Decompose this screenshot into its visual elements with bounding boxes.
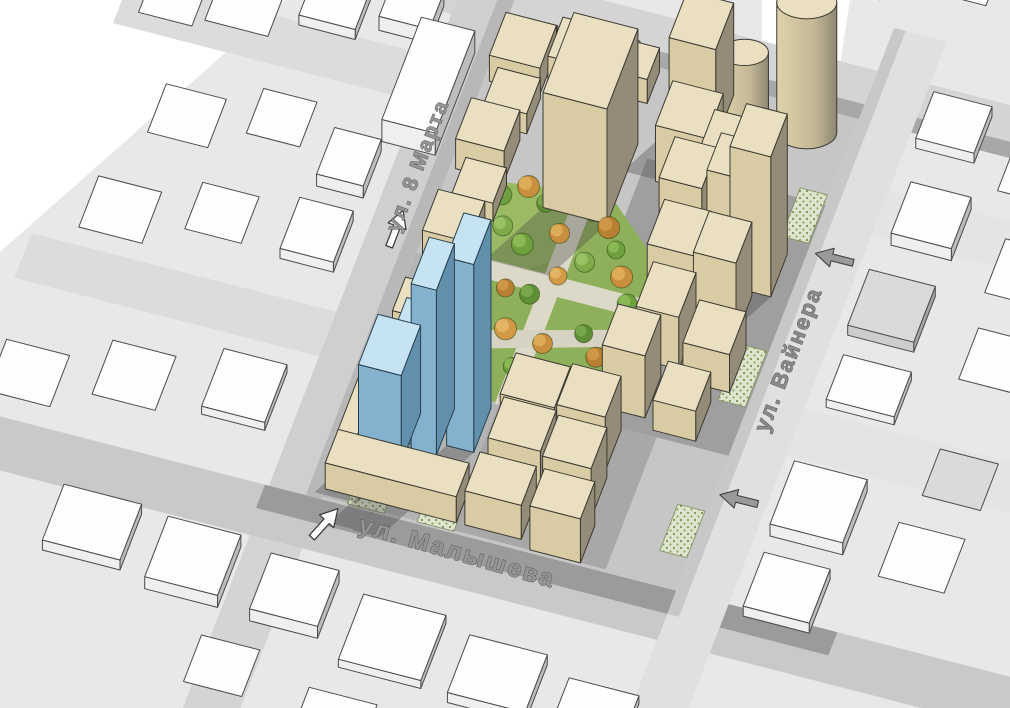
tree-canopy-highlight <box>608 242 619 253</box>
tree <box>520 284 540 304</box>
tree <box>607 241 625 259</box>
tree-canopy-highlight <box>576 253 588 265</box>
tree-canopy-highlight <box>521 285 533 297</box>
tree <box>495 318 517 340</box>
tree <box>611 266 633 288</box>
tree <box>550 223 570 243</box>
tree-canopy-highlight <box>496 319 509 332</box>
tree <box>575 325 593 343</box>
tree <box>496 279 514 297</box>
tree-canopy-highlight <box>519 177 532 190</box>
tree-canopy-highlight <box>551 224 563 236</box>
tree-canopy-highlight <box>612 267 625 280</box>
tree-canopy-highlight <box>587 348 599 360</box>
site-plan-canvas: ул. 8 Марта ул. Малышева ул. Вайнера <box>0 0 1010 708</box>
tree <box>518 176 540 198</box>
building-face-light <box>543 93 607 225</box>
tree-canopy-highlight <box>513 234 526 247</box>
context-building <box>465 452 536 540</box>
tree-canopy-highlight <box>550 268 561 279</box>
tree <box>493 216 513 236</box>
tree <box>533 334 553 354</box>
tree <box>511 233 533 255</box>
tree-canopy-highlight <box>576 326 587 337</box>
tree-canopy-highlight <box>497 280 508 291</box>
tree <box>549 267 567 285</box>
context-building <box>530 469 595 563</box>
tree <box>598 217 620 239</box>
tree <box>575 252 595 272</box>
tree-canopy-highlight <box>534 335 546 347</box>
tree-canopy-highlight <box>599 218 612 231</box>
tree-canopy-highlight <box>494 217 506 229</box>
masterplan-3d-view: ул. 8 Марта ул. Малышева ул. Вайнера <box>0 0 1010 708</box>
